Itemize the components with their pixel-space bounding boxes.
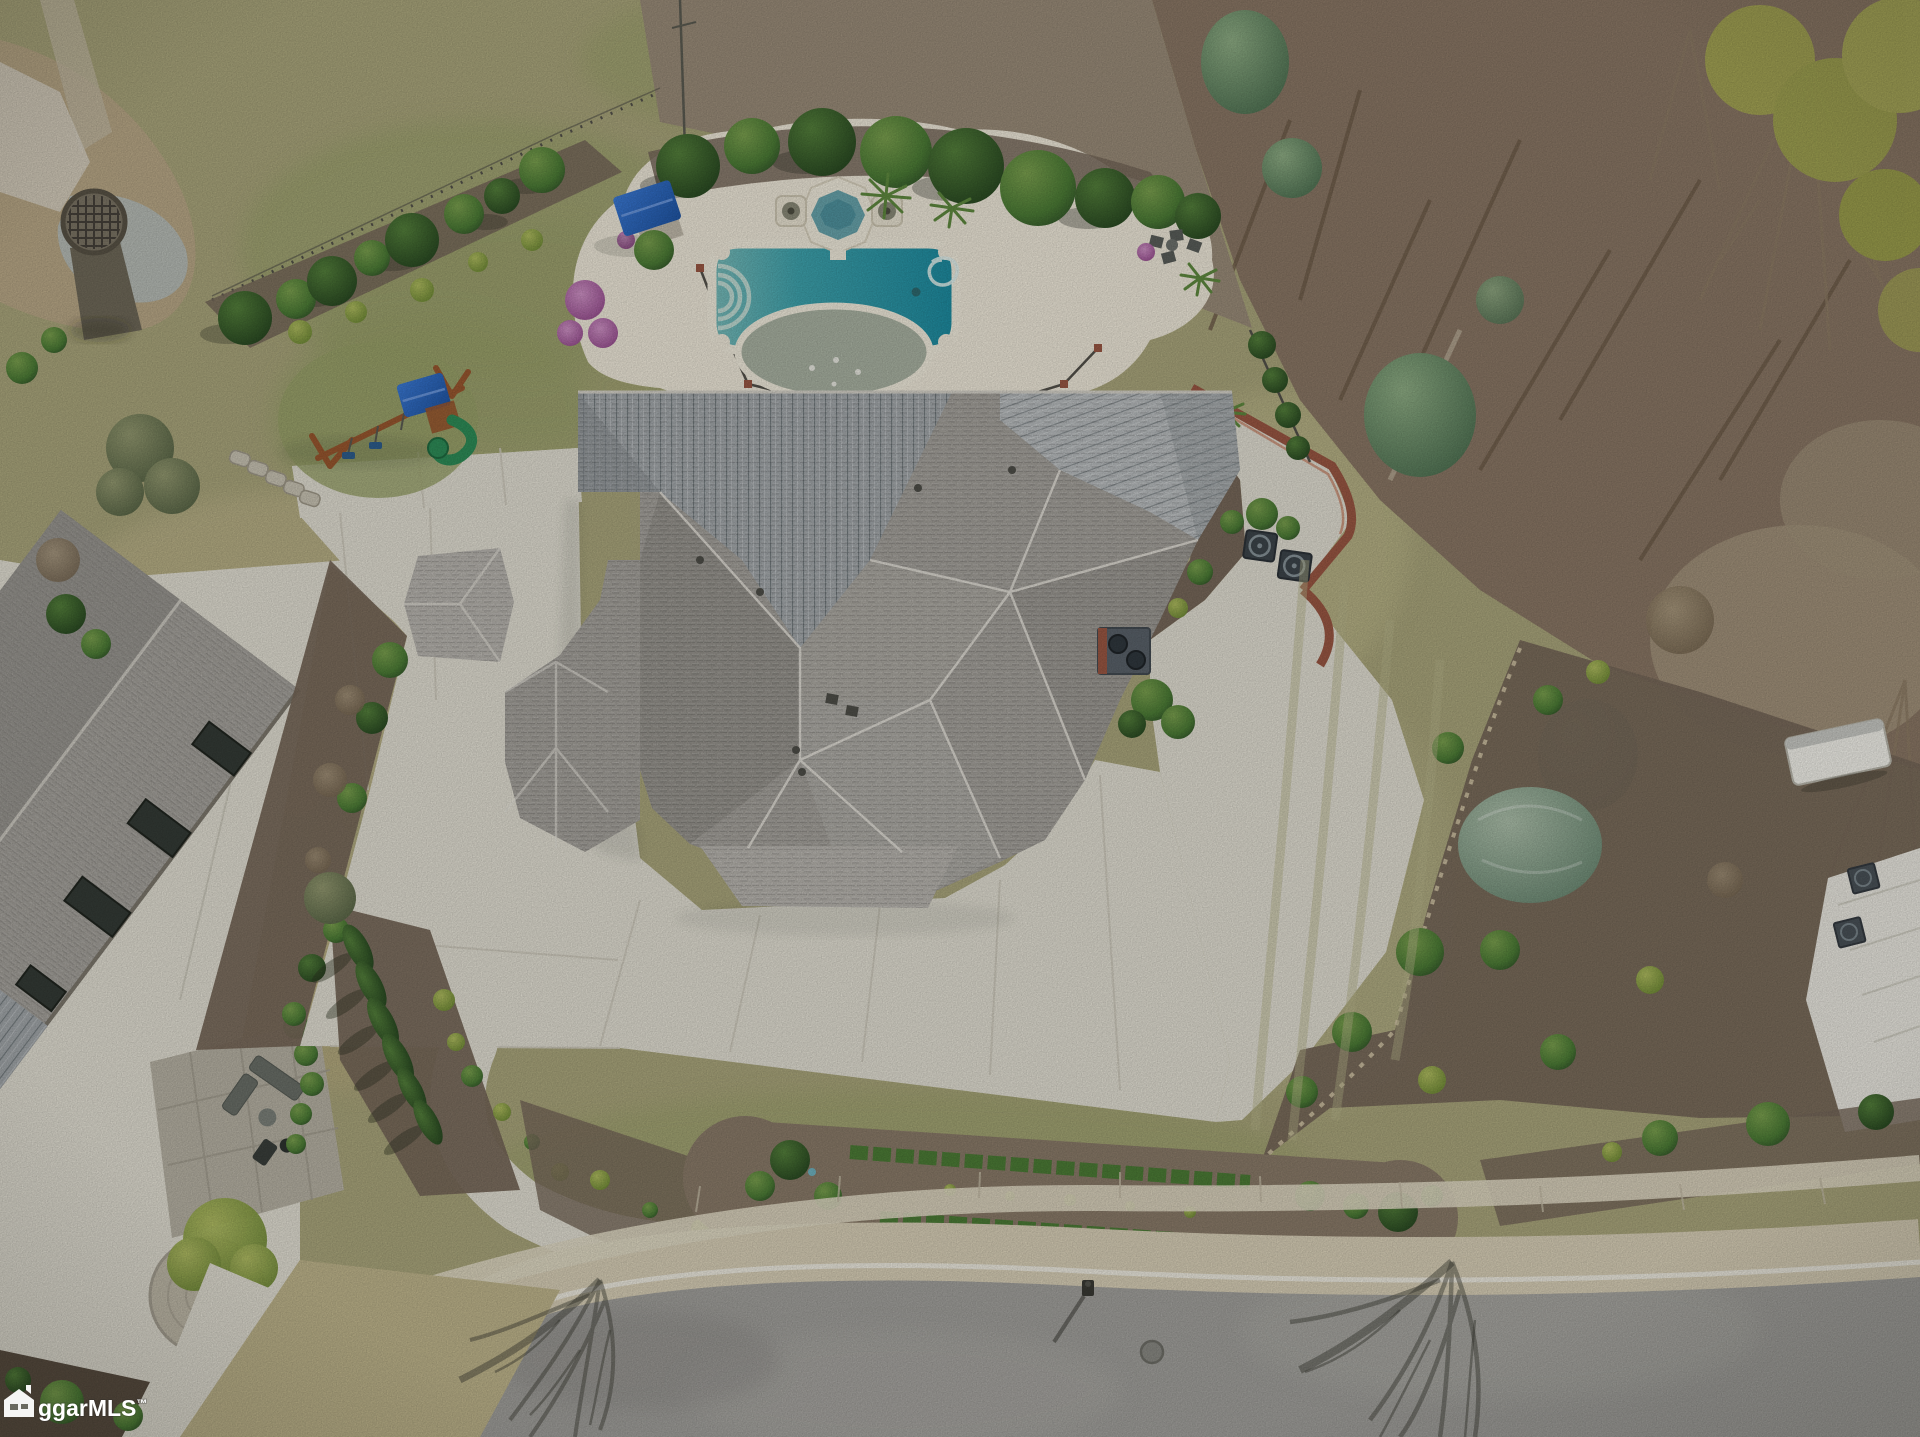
aerial-photo-luxury-home: ggarMLS™ — [0, 0, 1920, 1437]
photo-canvas: ggarMLS™ — [0, 0, 1920, 1437]
vignette — [0, 0, 1920, 1437]
watermark-text: ggarMLS™ — [38, 1395, 147, 1421]
